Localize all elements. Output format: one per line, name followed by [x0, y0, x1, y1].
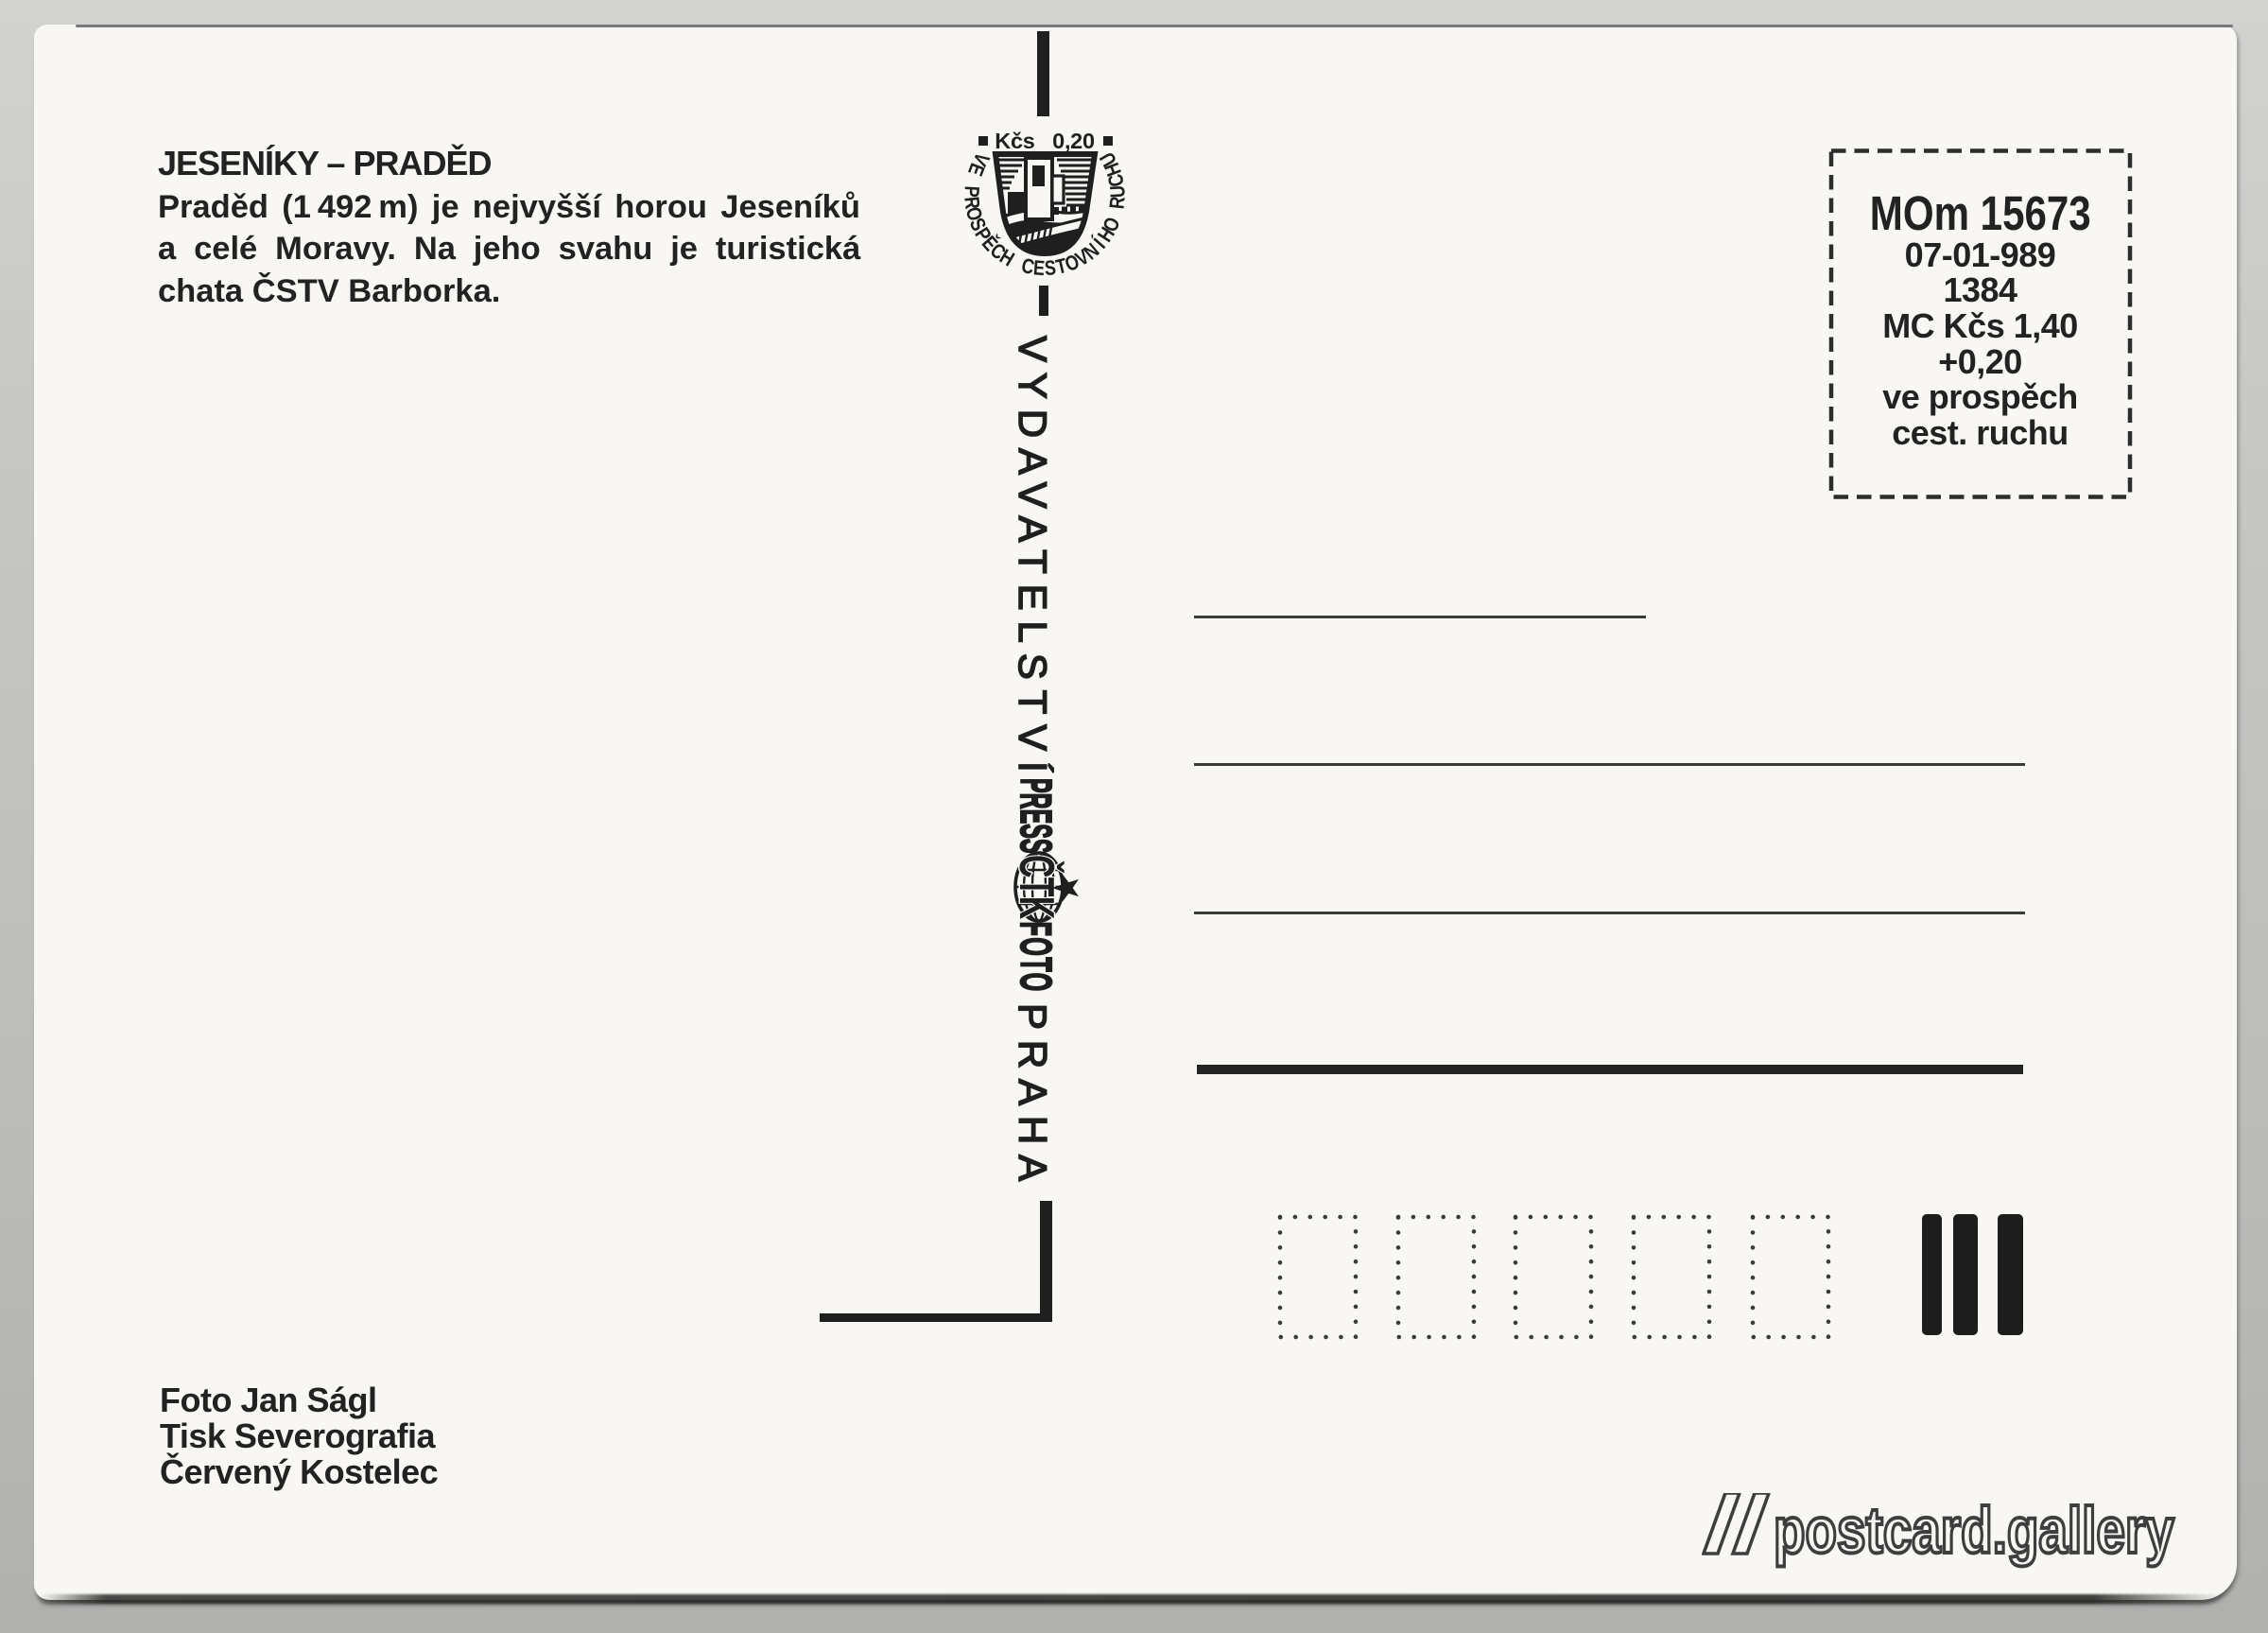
svg-text:PRESS: PRESS	[1012, 778, 1061, 854]
svg-text:PRAHA: PRAHA	[1011, 1003, 1055, 1191]
svg-text:postcard.gallery: postcard.gallery	[1774, 1495, 2174, 1567]
svg-text:Kčs 0,20: Kčs 0,20	[995, 129, 1095, 153]
svg-text:VYDAVATELSTVÍ: VYDAVATELSTVÍ	[1011, 336, 1055, 782]
svg-text:FOTO: FOTO	[1012, 922, 1061, 993]
